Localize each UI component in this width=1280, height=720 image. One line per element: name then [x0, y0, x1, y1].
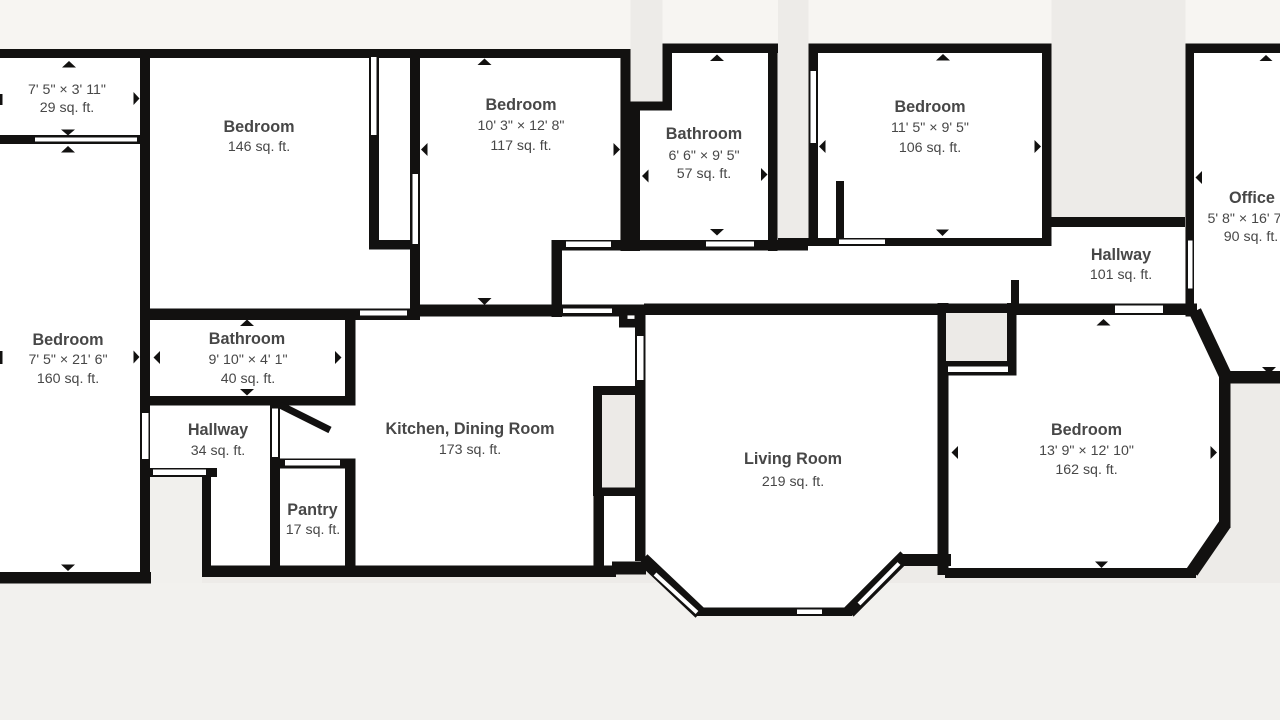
svg-text:7' 5" × 3' 11": 7' 5" × 3' 11": [28, 82, 106, 98]
svg-text:106 sq. ft.: 106 sq. ft.: [899, 140, 961, 156]
svg-text:Living Room: Living Room: [744, 450, 842, 468]
svg-text:Bedroom: Bedroom: [223, 118, 294, 136]
svg-text:34 sq. ft.: 34 sq. ft.: [191, 443, 245, 459]
svg-text:9' 10" × 4' 1": 9' 10" × 4' 1": [209, 352, 288, 368]
svg-text:Bedroom: Bedroom: [894, 98, 965, 116]
svg-text:117 sq. ft.: 117 sq. ft.: [490, 138, 551, 154]
svg-text:Hallway: Hallway: [188, 421, 248, 439]
svg-text:40 sq. ft.: 40 sq. ft.: [221, 371, 275, 387]
svg-text:Bedroom: Bedroom: [32, 331, 103, 349]
svg-text:6' 6" × 9' 5": 6' 6" × 9' 5": [668, 148, 739, 164]
svg-text:146 sq. ft.: 146 sq. ft.: [228, 139, 290, 155]
svg-text:10' 3" × 12' 8": 10' 3" × 12' 8": [478, 118, 565, 134]
svg-text:57 sq. ft.: 57 sq. ft.: [677, 166, 731, 182]
svg-text:162 sq. ft.: 162 sq. ft.: [1055, 462, 1117, 478]
svg-text:17 sq. ft.: 17 sq. ft.: [286, 522, 340, 538]
svg-text:160 sq. ft.: 160 sq. ft.: [37, 371, 99, 387]
svg-text:Bathroom: Bathroom: [666, 125, 742, 143]
svg-text:13' 9" × 12' 10": 13' 9" × 12' 10": [1039, 443, 1134, 459]
svg-text:11' 5" × 9' 5": 11' 5" × 9' 5": [891, 120, 969, 136]
svg-text:7' 5" × 21' 6": 7' 5" × 21' 6": [29, 352, 108, 368]
svg-text:Pantry: Pantry: [287, 501, 337, 519]
svg-text:219 sq. ft.: 219 sq. ft.: [762, 474, 824, 490]
svg-text:Bedroom: Bedroom: [1051, 421, 1122, 439]
svg-text:Office: Office: [1229, 189, 1275, 207]
svg-text:101 sq. ft.: 101 sq. ft.: [1090, 267, 1152, 283]
svg-text:29 sq. ft.: 29 sq. ft.: [40, 100, 94, 116]
svg-text:173 sq. ft.: 173 sq. ft.: [439, 442, 501, 458]
svg-text:Hallway: Hallway: [1091, 246, 1151, 264]
svg-text:Kitchen, Dining Room: Kitchen, Dining Room: [385, 420, 554, 438]
svg-text:90 sq. ft.: 90 sq. ft.: [1224, 229, 1278, 245]
svg-text:Bathroom: Bathroom: [209, 330, 285, 348]
svg-text:Bedroom: Bedroom: [485, 96, 556, 114]
svg-text:5' 8" × 16' 7": 5' 8" × 16' 7": [1208, 211, 1280, 227]
